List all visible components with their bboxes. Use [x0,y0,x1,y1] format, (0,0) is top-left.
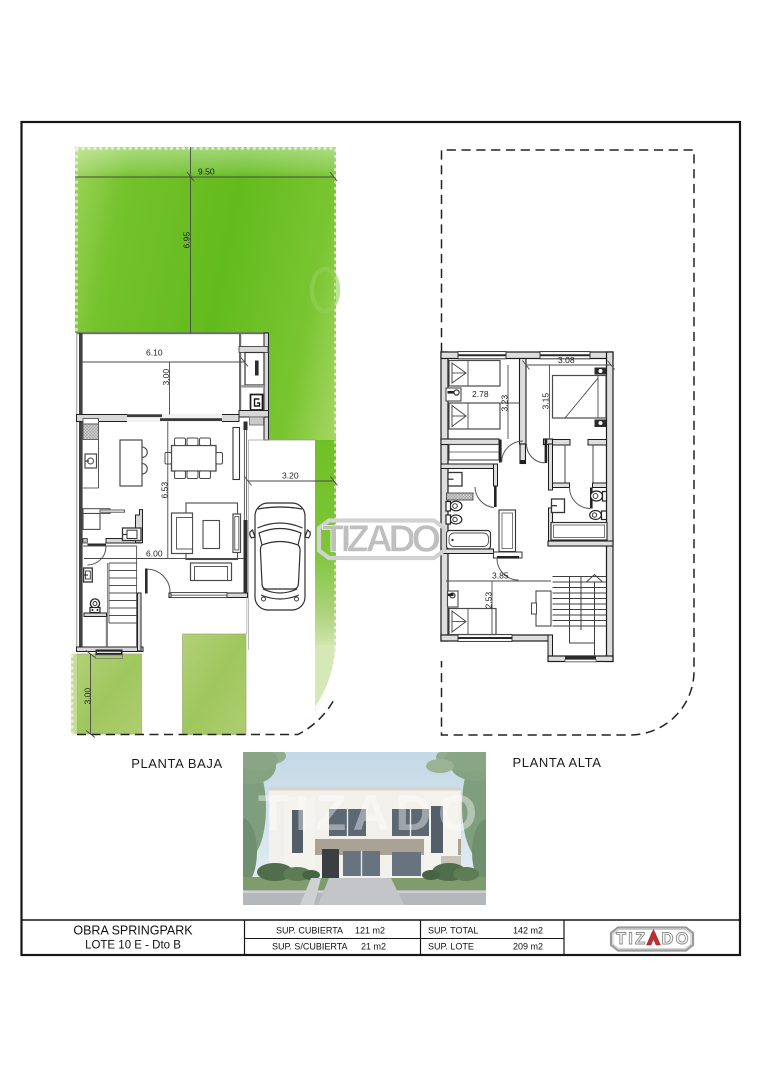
svg-text:3.00: 3.00 [83,688,93,705]
svg-text:3.00: 3.00 [161,369,171,386]
svg-text:21 m2: 21 m2 [361,942,386,952]
svg-text:3.85: 3.85 [492,571,509,581]
svg-text:6.53: 6.53 [160,482,170,499]
svg-text:121 m2: 121 m2 [355,926,385,936]
svg-text:9.50: 9.50 [198,167,215,177]
svg-text:6.10: 6.10 [146,348,163,358]
svg-text:209 m2: 209 m2 [513,942,543,952]
svg-text:3.08: 3.08 [558,355,575,365]
svg-text:SUP. S/CUBIERTA: SUP. S/CUBIERTA [272,942,348,952]
svg-text:PLANTA ALTA: PLANTA ALTA [513,755,602,770]
svg-text:142 m2: 142 m2 [513,926,543,936]
svg-text:OBRA SPRINGPARK: OBRA SPRINGPARK [73,924,193,938]
svg-text:3.20: 3.20 [282,471,299,481]
svg-text:3.15: 3.15 [541,393,551,410]
svg-text:2.78: 2.78 [472,389,489,399]
svg-text:LOTE 10 E - Dto B: LOTE 10 E - Dto B [85,940,181,952]
svg-text:SUP. CUBIERTA: SUP. CUBIERTA [276,926,343,936]
svg-text:2.53: 2.53 [484,592,494,609]
svg-text:PLANTA BAJA: PLANTA BAJA [131,756,223,771]
svg-text:SUP. TOTAL: SUP. TOTAL [428,926,478,936]
svg-text:6.95: 6.95 [182,232,192,249]
svg-text:TIZADO: TIZADO [322,519,440,561]
svg-text:6.00: 6.00 [146,549,163,559]
svg-text:3.23: 3.23 [500,395,510,412]
svg-text:SUP. LOTE: SUP. LOTE [428,942,474,952]
